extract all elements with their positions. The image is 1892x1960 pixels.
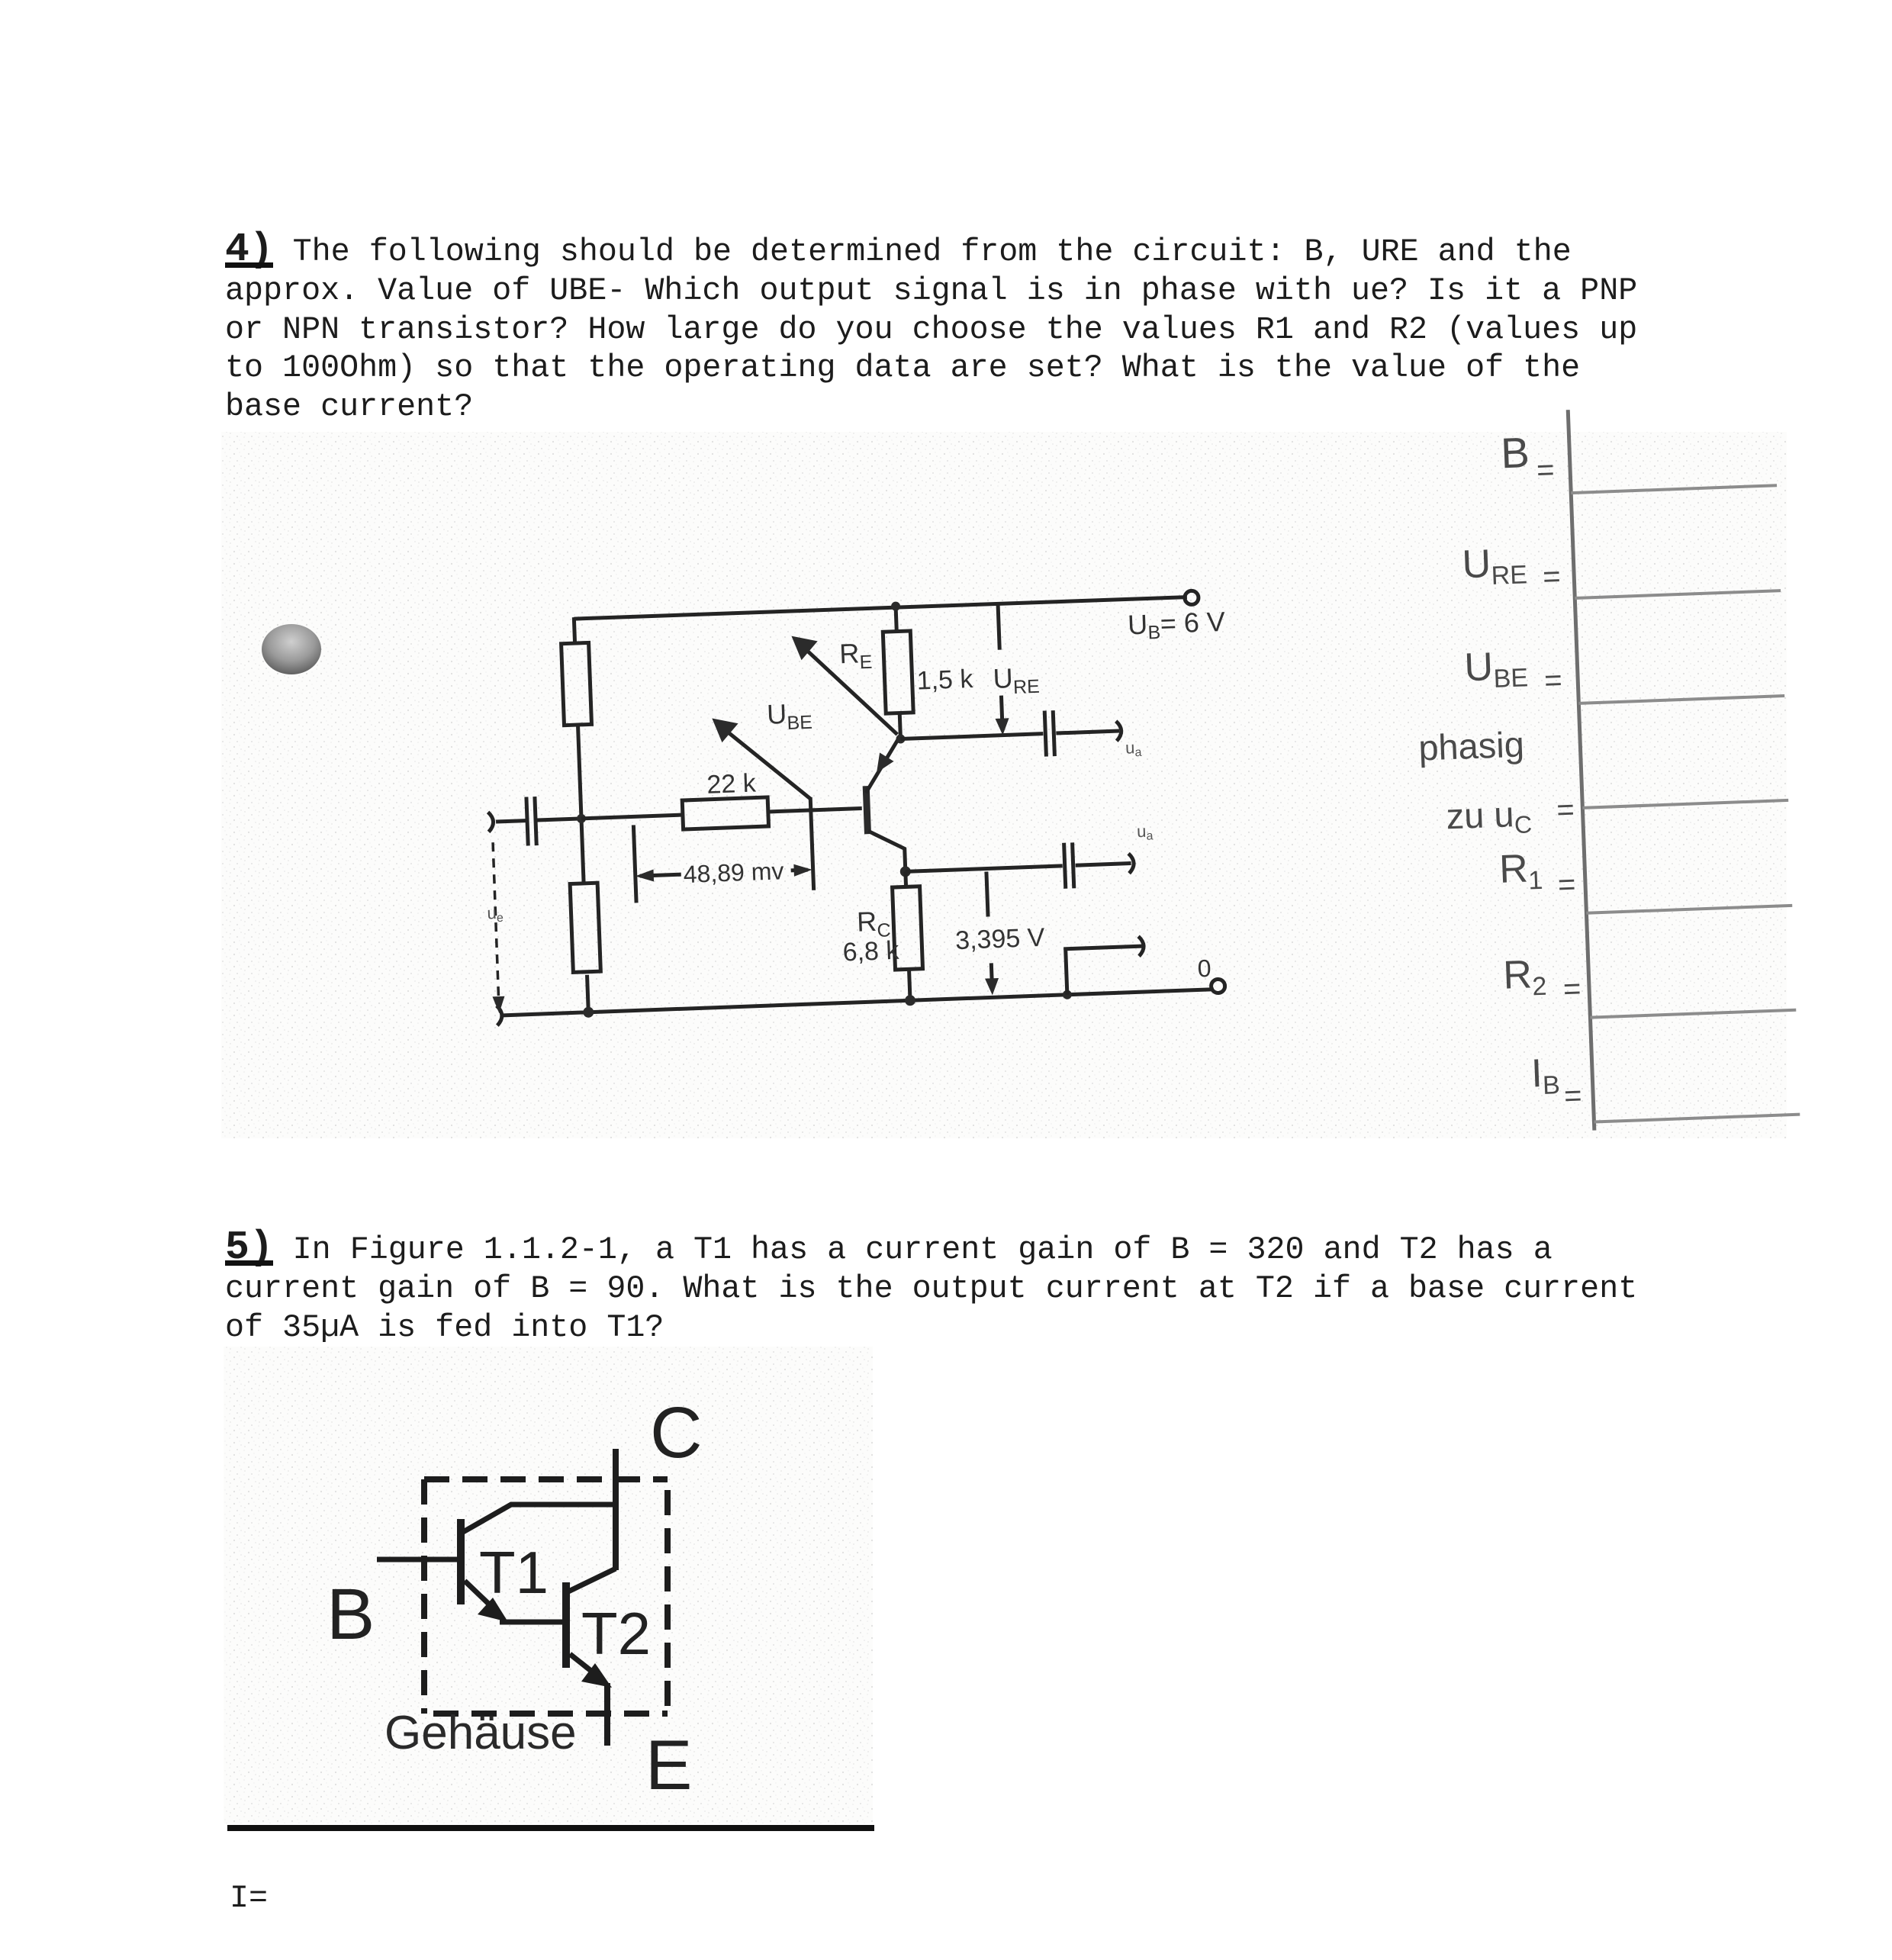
svg-text:=: = bbox=[1543, 664, 1562, 698]
svg-text:0: 0 bbox=[1197, 954, 1211, 983]
svg-text:B: B bbox=[1500, 428, 1530, 477]
svg-text:22 k: 22 k bbox=[706, 768, 758, 799]
svg-text:T1: T1 bbox=[479, 1539, 549, 1606]
svg-text:=: = bbox=[1536, 453, 1555, 488]
svg-text:E: E bbox=[645, 1727, 692, 1804]
svg-text:=: = bbox=[1563, 1079, 1582, 1113]
svg-text:48,89 mv: 48,89 mv bbox=[683, 857, 784, 888]
svg-text:6,8 k: 6,8 k bbox=[842, 936, 900, 967]
svg-text:C: C bbox=[650, 1392, 703, 1473]
svg-text:=: = bbox=[1562, 972, 1581, 1006]
svg-text:T2: T2 bbox=[581, 1600, 651, 1667]
svg-text:phasig: phasig bbox=[1417, 724, 1524, 768]
svg-text:1,5 k: 1,5 k bbox=[916, 665, 974, 696]
svg-text:=: = bbox=[1557, 867, 1576, 902]
svg-text:=: = bbox=[1542, 560, 1561, 594]
svg-text:3,395 V: 3,395 V bbox=[955, 923, 1046, 955]
svg-text:Gehäuse: Gehäuse bbox=[385, 1707, 577, 1759]
svg-text:B: B bbox=[327, 1574, 375, 1655]
svg-text:=: = bbox=[1556, 793, 1575, 827]
